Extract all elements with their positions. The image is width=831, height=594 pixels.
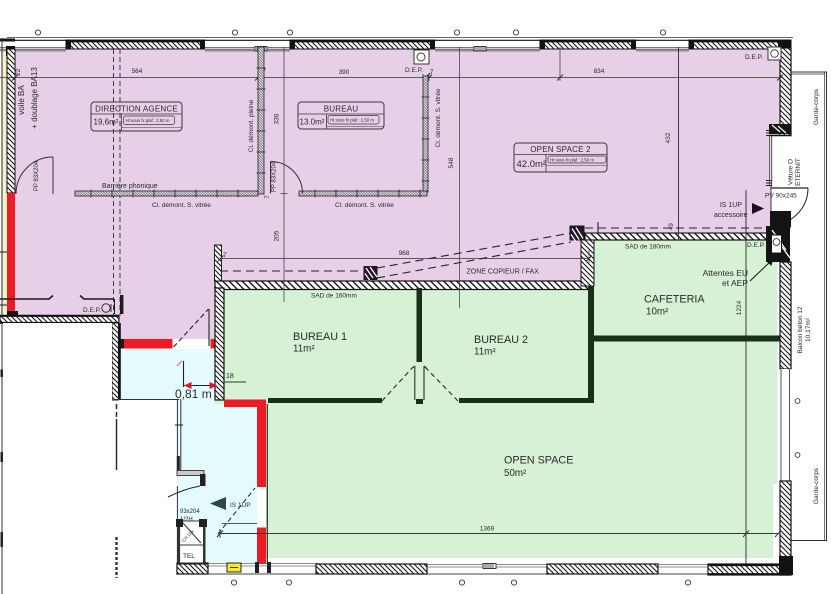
svg-text:BUREAU 2: BUREAU 2 xyxy=(474,334,528,346)
svg-text:ETERNIT: ETERNIT xyxy=(795,158,802,186)
svg-text:0,81 m: 0,81 m xyxy=(175,387,212,401)
svg-text:PP 83X204: PP 83X204 xyxy=(34,160,40,191)
svg-text:TEL: TEL xyxy=(183,553,195,560)
svg-text:548: 548 xyxy=(448,157,455,168)
svg-text:Garde-corps: Garde-corps xyxy=(813,467,820,504)
svg-text:BUREAU: BUREAU xyxy=(324,105,359,114)
svg-text:+ doublage BA13: + doublage BA13 xyxy=(30,67,39,129)
svg-text:205: 205 xyxy=(274,230,281,241)
svg-text:Attentes EU: Attentes EU xyxy=(703,268,748,278)
svg-text:D.E.P.: D.E.P. xyxy=(405,67,423,74)
svg-text:D.E.P.: D.E.P. xyxy=(747,242,765,249)
svg-text:D.E.P.: D.E.P. xyxy=(83,307,101,314)
svg-text:564: 564 xyxy=(132,68,143,75)
svg-text:11m²: 11m² xyxy=(474,347,496,358)
svg-text:Vêture O: Vêture O xyxy=(788,159,795,185)
svg-text:et AEP: et AEP xyxy=(722,278,748,288)
svg-text:ZONE COPIEUR / FAX: ZONE COPIEUR / FAX xyxy=(467,269,540,276)
svg-text:7: 7 xyxy=(430,69,434,76)
svg-text:7: 7 xyxy=(223,252,227,259)
svg-text:Barrière phonique: Barrière phonique xyxy=(102,183,158,190)
svg-text:10m²: 10m² xyxy=(646,307,669,318)
svg-text:49: 49 xyxy=(669,223,675,230)
svg-text:CAFETERIA: CAFETERIA xyxy=(644,294,705,306)
svg-text:Ht sous fx plaf : 2,50 m: Ht sous fx plaf : 2,50 m xyxy=(126,118,170,123)
svg-text:accessoire: accessoire xyxy=(714,212,748,219)
svg-text:390: 390 xyxy=(339,69,350,76)
svg-text:968: 968 xyxy=(399,250,410,257)
svg-text:D.E.P.: D.E.P. xyxy=(745,54,763,61)
svg-text:834: 834 xyxy=(594,68,605,75)
svg-text:OPEN SPACE 2: OPEN SPACE 2 xyxy=(530,145,591,154)
svg-text:1224: 1224 xyxy=(736,300,743,315)
svg-text:DIRECTION AGENCE: DIRECTION AGENCE xyxy=(95,105,178,114)
svg-text:93x204: 93x204 xyxy=(180,509,200,515)
svg-text:22: 22 xyxy=(15,68,22,76)
svg-text:BUREAU 1: BUREAU 1 xyxy=(293,331,347,343)
svg-text:Cl. démont. S. vitrée: Cl. démont. S. vitrée xyxy=(335,202,394,209)
svg-text:IS 1UP: IS 1UP xyxy=(720,202,743,209)
svg-text:voile BA: voile BA xyxy=(17,85,26,115)
svg-text:Garde-corps: Garde-corps xyxy=(813,88,820,125)
svg-text:OPEN SPACE: OPEN SPACE xyxy=(504,455,573,467)
svg-text:Cl. démont. S. vitrée: Cl. démont. S. vitrée xyxy=(435,88,442,147)
svg-text:10,17m²: 10,17m² xyxy=(805,317,812,342)
svg-text:Ht sous fx plaf : 2,50 m: Ht sous fx plaf : 2,50 m xyxy=(330,118,374,123)
svg-text:Ht sous fx plaf : 2,50 m: Ht sous fx plaf : 2,50 m xyxy=(550,158,594,163)
svg-text:PV 90x245: PV 90x245 xyxy=(765,193,797,200)
svg-text:PP 83X204: PP 83X204 xyxy=(272,161,278,192)
svg-text:1369: 1369 xyxy=(480,526,495,533)
svg-text:432: 432 xyxy=(665,132,672,143)
svg-text:Cl. démont. S. vitrée: Cl. démont. S. vitrée xyxy=(152,202,211,209)
svg-text:SAD de 180mm: SAD de 180mm xyxy=(625,244,671,251)
svg-text:IS 1UP: IS 1UP xyxy=(230,502,251,509)
svg-text:50m²: 50m² xyxy=(504,468,527,479)
svg-text:42.0m²: 42.0m² xyxy=(517,159,547,170)
svg-text:19,6m²: 19,6m² xyxy=(94,118,119,127)
svg-text:Balcon béton 12: Balcon béton 12 xyxy=(797,306,804,353)
svg-text:18: 18 xyxy=(226,373,234,380)
svg-text:336: 336 xyxy=(274,113,281,124)
svg-text:Cl. démont. pleine: Cl. démont. pleine xyxy=(248,99,255,152)
svg-text:SAD de 160mm: SAD de 160mm xyxy=(311,293,357,300)
svg-text:11m²: 11m² xyxy=(293,344,315,355)
svg-text:13.0m²: 13.0m² xyxy=(300,118,325,127)
